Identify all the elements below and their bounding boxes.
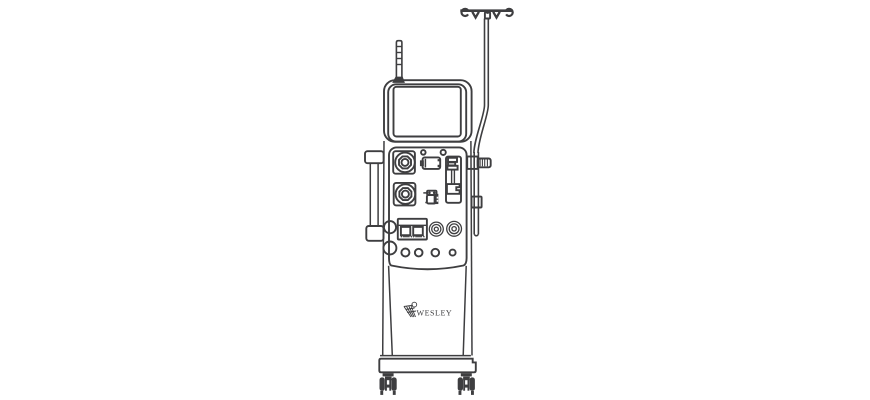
svg-text:WESLEY: WESLEY [416, 309, 452, 318]
